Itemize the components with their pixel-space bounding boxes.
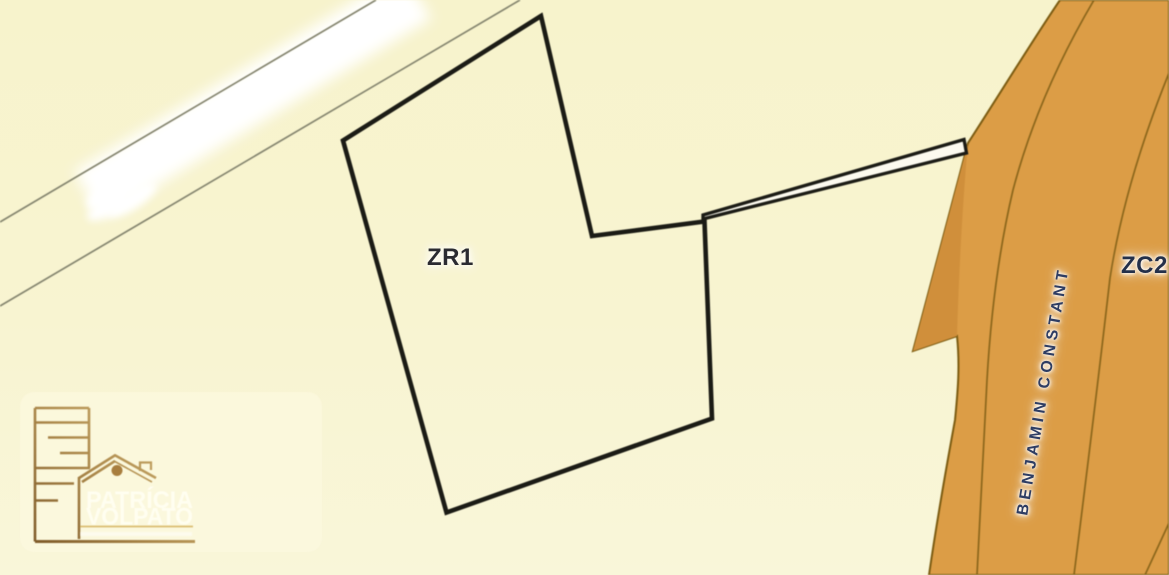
svg-text:VOLPATO: VOLPATO (86, 504, 193, 531)
